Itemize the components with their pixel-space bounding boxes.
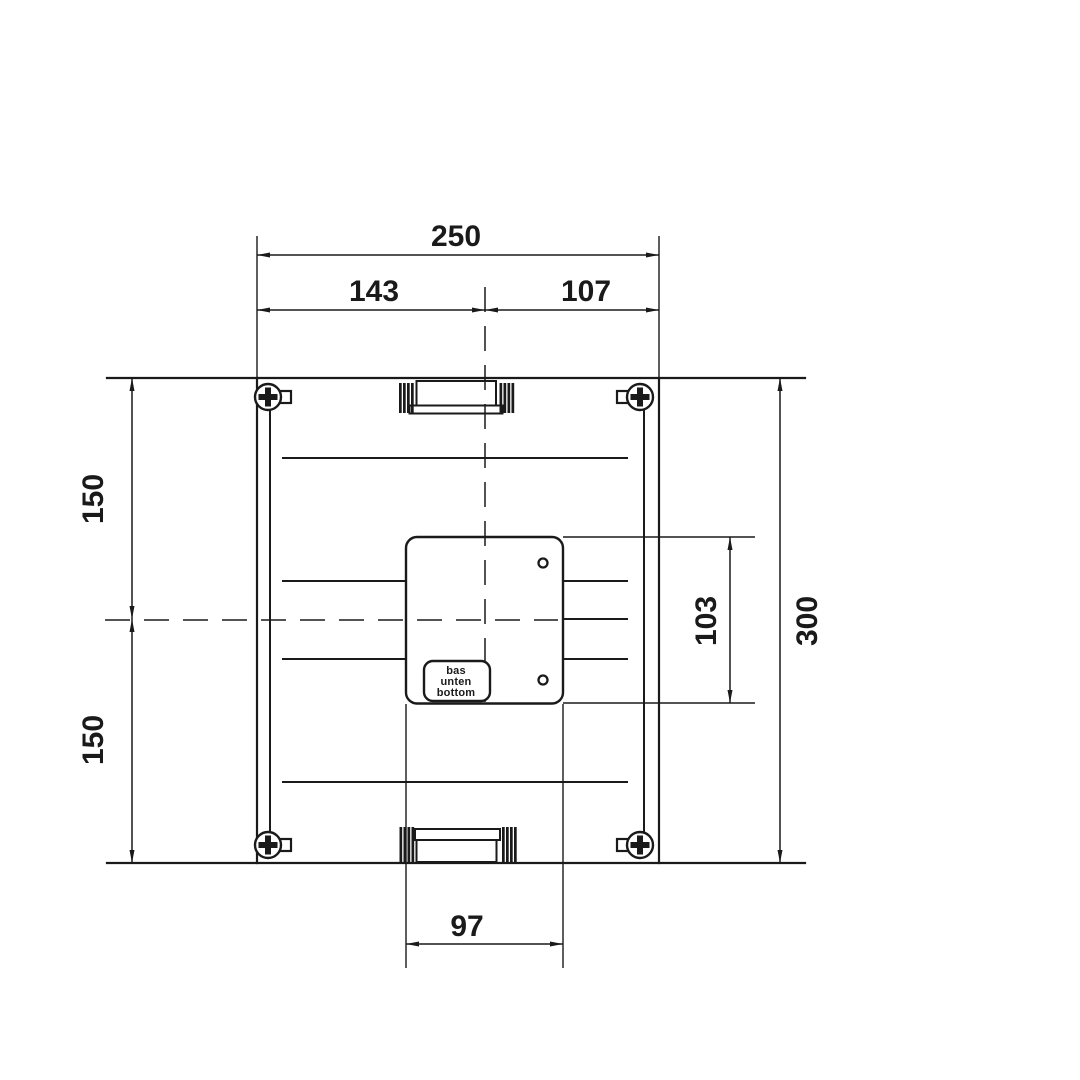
box-hole-bottom [539, 676, 548, 685]
dim-label-left-to-center: 143 [349, 275, 399, 308]
orientation-label-line3: bottom [437, 687, 475, 699]
top-clamp-left-hatch-icon [399, 383, 414, 413]
technical-drawing: bas unten bottom 250 143 107 150 150 300… [0, 0, 1080, 1080]
bottom-clamp-flange [415, 829, 500, 840]
top-clamp-body [417, 381, 497, 406]
dim-label-center-to-right: 107 [561, 275, 611, 308]
dim-label-box-height: 103 [690, 596, 723, 646]
top-clamp-right-hatch-icon [500, 383, 515, 413]
bottom-clamp-body [417, 840, 497, 862]
top-cable-clamp [399, 381, 514, 414]
screw-top-right-icon [617, 384, 653, 410]
drawing-canvas: bas unten bottom 250 143 107 150 150 300… [0, 0, 1080, 1080]
dim-label-bottom-half-height: 150 [77, 715, 110, 765]
dim-label-total-width: 250 [431, 220, 481, 253]
box-hole-top [539, 559, 548, 568]
screw-top-left-icon [255, 384, 291, 410]
top-clamp-flange [410, 406, 503, 414]
bottom-clamp-left-hatch-icon [400, 827, 415, 862]
bottom-clamp-right-hatch-icon [502, 827, 517, 862]
dim-label-box-width: 97 [450, 910, 483, 943]
bottom-cable-clamp [400, 827, 517, 862]
screw-bottom-left-icon [255, 832, 291, 858]
screw-bottom-right-icon [617, 832, 653, 858]
dim-label-total-height: 300 [791, 596, 824, 646]
dim-label-top-half-height: 150 [77, 474, 110, 524]
